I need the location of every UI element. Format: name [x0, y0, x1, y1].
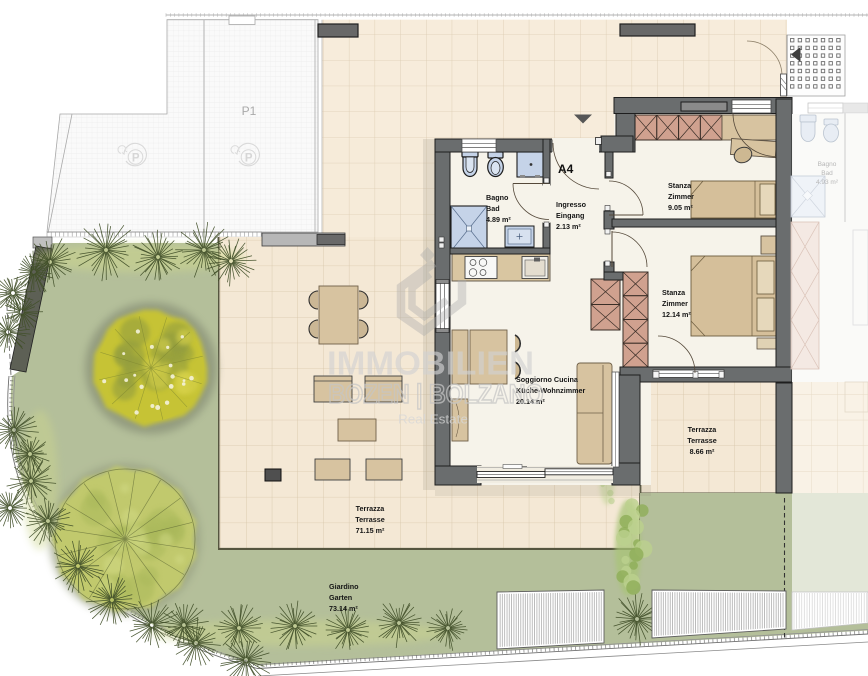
svg-text:P1: P1	[242, 104, 257, 118]
svg-text:Giardino: Giardino	[329, 582, 359, 591]
svg-text:Bagno: Bagno	[486, 193, 509, 202]
svg-text:Eingang: Eingang	[556, 211, 584, 220]
svg-text:Terrasse: Terrasse	[687, 436, 716, 445]
svg-text:BOZEN | BOLZANO: BOZEN | BOLZANO	[329, 379, 544, 409]
svg-text:A4: A4	[558, 162, 574, 176]
svg-text:Garten: Garten	[329, 593, 352, 602]
svg-text:Zimmer: Zimmer	[662, 299, 688, 308]
svg-text:Terrazza: Terrazza	[688, 425, 718, 434]
svg-text:Bad: Bad	[821, 170, 833, 177]
svg-text:4.93 m²: 4.93 m²	[816, 179, 839, 186]
svg-text:Real Estate: Real Estate	[398, 412, 468, 427]
svg-text:Bad: Bad	[486, 204, 500, 213]
svg-text:9.05 m²: 9.05 m²	[668, 203, 693, 212]
svg-text:Stanza: Stanza	[668, 181, 692, 190]
svg-text:Ingresso: Ingresso	[556, 200, 587, 209]
svg-text:P: P	[132, 153, 140, 165]
svg-text:Bagno: Bagno	[818, 161, 837, 168]
svg-text:IMMOBILIEN: IMMOBILIEN	[327, 345, 534, 382]
svg-text:Stanza: Stanza	[662, 288, 686, 297]
svg-text:73.14 m²: 73.14 m²	[329, 604, 358, 613]
svg-text:P: P	[245, 153, 253, 165]
svg-text:8.66 m²: 8.66 m²	[690, 447, 715, 456]
svg-text:2.13 m²: 2.13 m²	[556, 222, 581, 231]
svg-text:71.15 m²: 71.15 m²	[356, 526, 385, 535]
svg-text:Terrasse: Terrasse	[355, 515, 384, 524]
svg-text:12.14 m²: 12.14 m²	[662, 310, 691, 319]
svg-text:Terrazza: Terrazza	[356, 504, 386, 513]
svg-text:Zimmer: Zimmer	[668, 192, 694, 201]
svg-text:4.89 m²: 4.89 m²	[486, 215, 511, 224]
